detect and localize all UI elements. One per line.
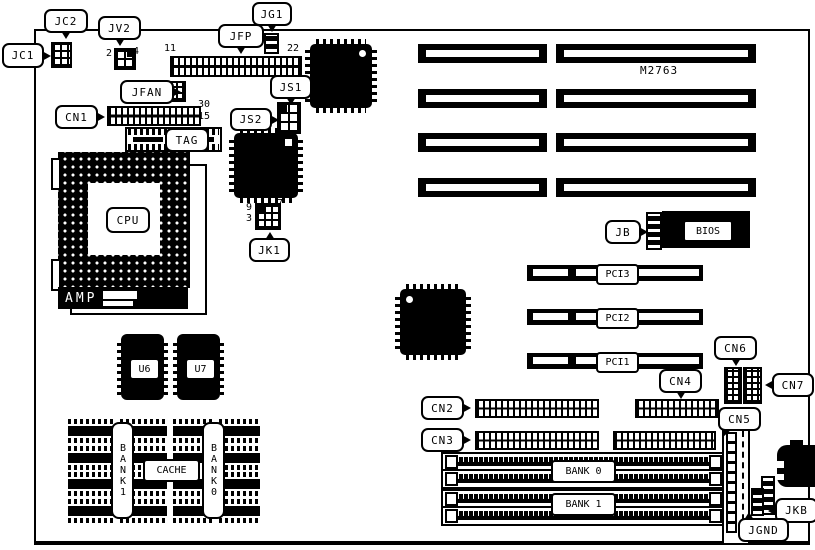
cn1-callout: CN1: [55, 105, 98, 129]
jgnd-callout: JGND: [738, 518, 789, 542]
jg1-callout: JG1: [252, 2, 292, 26]
cn4-header: [635, 399, 719, 418]
cache-label: CACHE: [143, 459, 200, 482]
keyboard-din-connector: [777, 445, 815, 487]
cn3-header: [475, 431, 599, 450]
pci1-label: PCI1: [596, 352, 639, 373]
qfp-chip-2: [234, 133, 298, 198]
cn2-header: [475, 399, 599, 418]
pci3-label: PCI3: [596, 264, 639, 285]
amp-socket-bar: AMP: [58, 287, 188, 309]
cn3-callout: CN3: [421, 428, 464, 452]
cpu-label: CPU: [106, 207, 150, 233]
bios-label: BIOS: [683, 220, 733, 242]
isa-slot3-right: [556, 133, 756, 152]
jg1-jumper: [264, 33, 279, 54]
cn5-callout: CN5: [718, 407, 761, 431]
cn1-pin30-number: 30: [198, 99, 210, 110]
isa-slot1-right: [556, 44, 756, 63]
isa-slot4-right: [556, 178, 756, 197]
jv2-callout: JV2: [98, 16, 141, 40]
jfp-header: [170, 56, 302, 77]
jfan-callout: JFAN: [120, 80, 174, 104]
js-jumper-block: [277, 102, 301, 134]
socket-lever-top: [51, 158, 61, 190]
isa-slot1-left: [418, 44, 547, 63]
amp-brand: AMP: [65, 291, 97, 306]
u7-label: U7: [185, 358, 216, 380]
js2-callout: JS2: [230, 108, 272, 131]
jc-connector: [51, 42, 72, 68]
qfp-chip-1: [310, 44, 372, 108]
isa-slot2-right: [556, 89, 756, 108]
jv2-pin4-number: 4: [133, 46, 139, 57]
jc2-callout: JC2: [44, 9, 88, 33]
cache-bank0-column-b: [219, 419, 260, 523]
jk1-pin9-number: 9: [246, 202, 252, 213]
cache-bank1-column-a: [68, 419, 114, 523]
pin1-dot: [406, 296, 413, 303]
isa-slot4-left: [418, 178, 547, 197]
tag-label: TAG: [165, 128, 209, 152]
jk1-pin3-number: 3: [246, 213, 252, 224]
cache-bank1-label: BANK1: [111, 422, 134, 519]
cn6-callout: CN6: [714, 336, 757, 360]
pci2-label: PCI2: [596, 308, 639, 329]
jb-jumper: [646, 212, 662, 250]
jv2-pin2-number: 2: [106, 48, 112, 59]
jb-callout: JB: [605, 220, 641, 244]
cn1-header: [107, 106, 201, 126]
isa-slot2-left: [418, 89, 547, 108]
js1-callout: JS1: [270, 75, 312, 99]
bank1-label: BANK 1: [551, 493, 616, 516]
motherboard-diagram: M2763 PCI3 PCI2 PCI1 BIOS JB: [0, 0, 815, 550]
jfp-callout: JFP: [218, 24, 264, 48]
u6-label: U6: [129, 358, 160, 380]
pin1-dot: [359, 50, 366, 57]
jk1-pin7-number: 7: [277, 198, 283, 209]
jfp-pin11-number: 11: [164, 43, 176, 54]
cn5-header: [613, 431, 716, 450]
isa-slot3-left: [418, 133, 547, 152]
jfp-pin22-number: 22: [287, 43, 299, 54]
board-part-number: M2763: [640, 64, 678, 77]
cache-bank0-label: BANK0: [202, 422, 225, 519]
cn7-connector: [743, 367, 762, 404]
cn1-pin15-number: 15: [198, 111, 210, 122]
cn2-callout: CN2: [421, 396, 464, 420]
cn7-callout: CN7: [772, 373, 814, 397]
pin1-dot: [285, 139, 292, 146]
bank0-label: BANK 0: [551, 460, 616, 483]
jk1-callout: JK1: [249, 238, 290, 262]
jc1-callout: JC1: [2, 43, 44, 68]
cn4-callout: CN4: [659, 369, 702, 393]
cn6-connector: [724, 367, 742, 404]
qfp-chip-3: [400, 289, 466, 355]
